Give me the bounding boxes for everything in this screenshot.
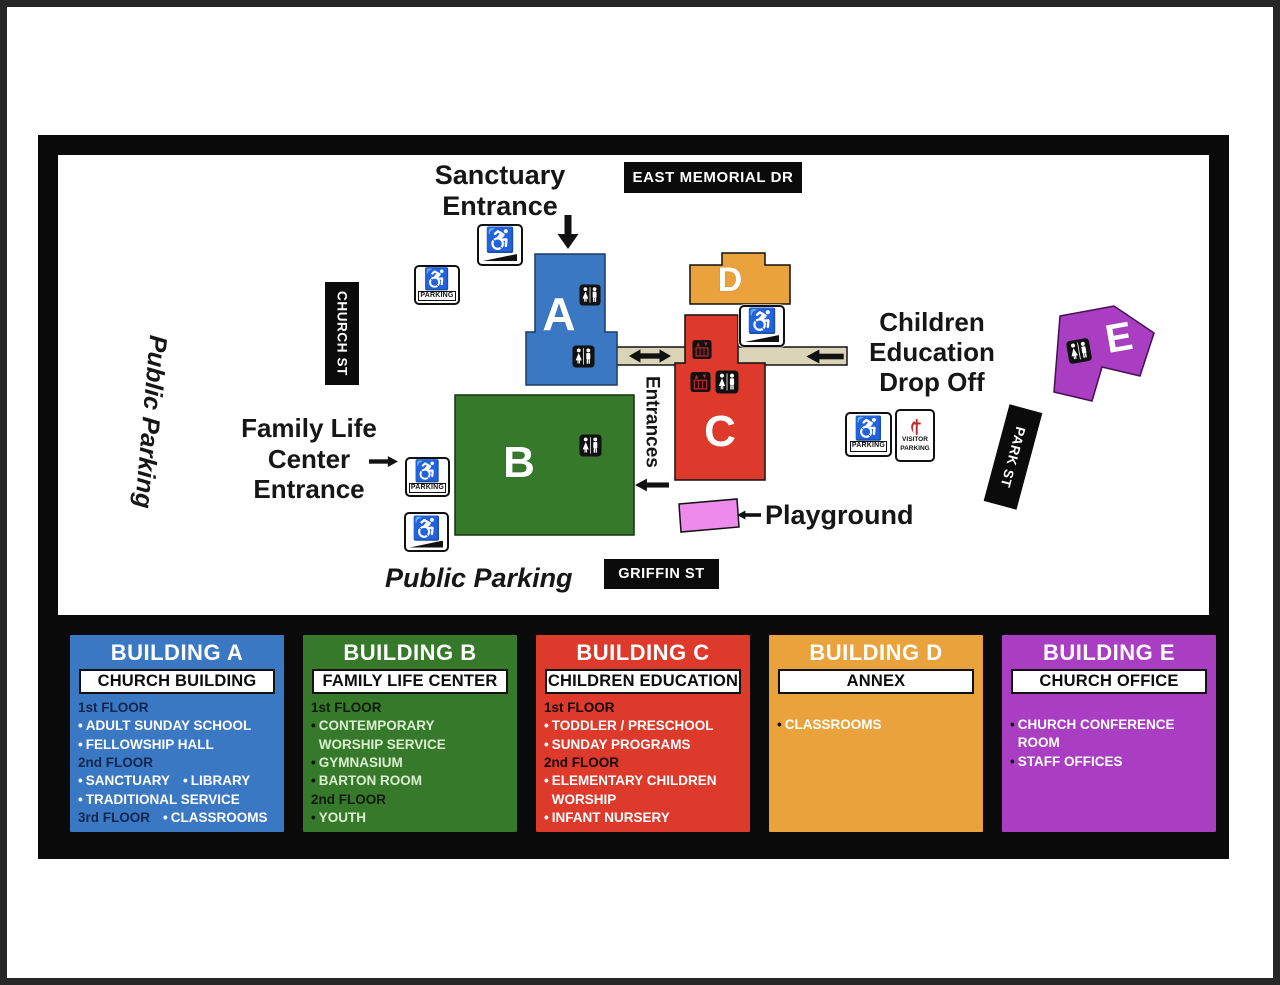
- flc-line1: Family Life: [214, 413, 404, 444]
- wheelchair-glyph: ♿: [412, 517, 441, 540]
- legend-line: •INFANT NURSERY: [544, 809, 743, 827]
- arrow-left-playground-icon: [737, 508, 761, 522]
- legend-panel-e: BUILDING ECHURCH OFFICE•CHURCH CONFERENC…: [1002, 635, 1216, 832]
- legend-panel-subtitle: CHURCH BUILDING: [79, 669, 275, 694]
- bullet-dot: •: [544, 809, 549, 827]
- legend-floor-label: 3rd FLOOR: [78, 809, 150, 827]
- legend-line: •GYMNASIUM: [311, 754, 510, 772]
- arrow-down-icon: [555, 215, 581, 249]
- arrow-right-flc-icon: [369, 454, 398, 469]
- playground-shape: [679, 499, 739, 532]
- visitor-parking-line1: VISITOR: [902, 436, 928, 444]
- legend-bullet-item: •CHURCH CONFERENCE ROOM: [1010, 716, 1175, 753]
- arrow-left-b-entrance-icon: [635, 477, 669, 493]
- legend-line: •ELEMENTARY CHILDREN WORSHIP: [544, 772, 743, 809]
- legend-panel-b: BUILDING BFAMILY LIFE CENTER1st FLOOR•CO…: [303, 635, 517, 832]
- bullet-dot: •: [544, 736, 549, 754]
- building-c-letter: C: [690, 410, 750, 454]
- legend-line: •CONTEMPORARY WORSHIP SERVICE: [311, 717, 510, 754]
- bullet-dot: •: [311, 717, 316, 754]
- ramp-wedge: [410, 541, 444, 548]
- legend-panel-items: 1st FLOOR•ADULT SUNDAY SCHOOL•FELLOWSHIP…: [70, 696, 284, 828]
- bullet-text: ADULT SUNDAY SCHOOL: [86, 717, 252, 735]
- ramp-wedge: [483, 254, 517, 261]
- bullet-dot: •: [777, 716, 782, 734]
- legend-line: 1st FLOOR: [78, 699, 277, 717]
- bullet-dot: •: [78, 791, 83, 809]
- building-d-letter: D: [700, 263, 760, 297]
- bullet-text: CHURCH CONFERENCE ROOM: [1018, 716, 1175, 753]
- legend-bullet-item: •FELLOWSHIP HALL: [78, 736, 214, 754]
- legend-line: •SUNDAY PROGRAMS: [544, 736, 743, 754]
- elevator-icon: [690, 371, 711, 393]
- legend-bullet-item: •BARTON ROOM: [311, 772, 422, 790]
- bullet-text: INFANT NURSERY: [552, 809, 670, 827]
- bullet-dot: •: [311, 772, 316, 790]
- parking-sign-label: PARKING: [850, 441, 887, 451]
- legend-row: BUILDING ACHURCH BUILDING1st FLOOR•ADULT…: [70, 635, 1217, 832]
- bullet-text: SUNDAY PROGRAMS: [552, 736, 691, 754]
- page: { "colors": { "building_a_blue": "#3B78C…: [0, 0, 1280, 985]
- elevator-icon: [692, 339, 712, 360]
- legend-floor-label: 1st FLOOR: [311, 699, 382, 717]
- legend-bullet-item: •STAFF OFFICES: [1010, 753, 1122, 771]
- legend-panel-items: •CLASSROOMS: [769, 696, 983, 734]
- legend-bullet-item: •CLASSROOMS: [163, 809, 268, 827]
- children-education-drop-off-label: Children Education Drop Off: [842, 308, 1022, 398]
- campus-map: EAST MEMORIAL DR CHURCH ST GRIFFIN ST PA…: [58, 155, 1209, 615]
- building-b-letter: B: [489, 441, 549, 485]
- legend-line: •TODDLER / PRESCHOOL: [544, 717, 743, 735]
- legend-panel-subtitle: CHILDREN EDUCATION: [545, 669, 741, 694]
- legend-bullet-item: •CONTEMPORARY WORSHIP SERVICE: [311, 717, 446, 754]
- restroom-icon: [1065, 337, 1093, 365]
- wheelchair-glyph: ♿: [414, 461, 440, 482]
- restroom-icon: [572, 345, 595, 368]
- bullet-dot: •: [78, 772, 83, 790]
- bullet-dot: •: [1010, 716, 1015, 753]
- wheelchair-ramp-icon: ♿: [739, 305, 785, 347]
- legend-line: •BARTON ROOM: [311, 772, 510, 790]
- bullet-text: TRADITIONAL SERVICE: [86, 791, 240, 809]
- bullet-text: SANCTUARY: [86, 772, 170, 790]
- legend-panel-title: BUILDING B: [303, 635, 517, 666]
- restroom-icon: [579, 284, 601, 306]
- children-line1: Children: [842, 308, 1022, 338]
- legend-line: 2nd FLOOR: [544, 754, 743, 772]
- legend-line: •CLASSROOMS: [777, 716, 976, 734]
- legend-bullet-item: •TRADITIONAL SERVICE: [78, 791, 240, 809]
- visitor-parking-line2: PARKING: [900, 445, 930, 453]
- wheelchair-parking-icon: ♿ PARKING: [845, 412, 892, 457]
- arrow-left-dropoff-icon: [806, 349, 844, 364]
- bullet-text: CLASSROOMS: [785, 716, 882, 734]
- legend-panel-title: BUILDING C: [536, 635, 750, 666]
- bullet-dot: •: [78, 717, 83, 735]
- restroom-icon: [579, 434, 602, 457]
- bullet-dot: •: [78, 736, 83, 754]
- bullet-text: FELLOWSHIP HALL: [86, 736, 214, 754]
- legend-line: •ADULT SUNDAY SCHOOL: [78, 717, 277, 735]
- legend-line: 2nd FLOOR: [311, 791, 510, 809]
- bullet-dot: •: [311, 809, 316, 827]
- legend-bullet-item: •ELEMENTARY CHILDREN WORSHIP: [544, 772, 717, 809]
- legend-panel-subtitle: ANNEX: [778, 669, 974, 694]
- legend-panel-title: BUILDING E: [1002, 635, 1216, 666]
- street-griffin-st: GRIFFIN ST: [604, 559, 719, 589]
- bullet-text: LIBRARY: [191, 772, 251, 790]
- bullet-text: ELEMENTARY CHILDREN WORSHIP: [552, 772, 717, 809]
- legend-panel-a: BUILDING ACHURCH BUILDING1st FLOOR•ADULT…: [70, 635, 284, 832]
- sanctuary-entrance-line1: Sanctuary: [410, 160, 590, 191]
- street-church-st: CHURCH ST: [325, 282, 359, 385]
- wheelchair-glyph: ♿: [485, 229, 515, 253]
- legend-panel-d: BUILDING DANNEX•CLASSROOMS: [769, 635, 983, 832]
- wheelchair-glyph: ♿: [424, 269, 450, 290]
- legend-panel-items: 1st FLOOR•CONTEMPORARY WORSHIP SERVICE•G…: [303, 696, 517, 828]
- umc-cross-flame-icon: [907, 418, 923, 436]
- bullet-text: CONTEMPORARY WORSHIP SERVICE: [319, 717, 446, 754]
- legend-line: •TRADITIONAL SERVICE: [78, 791, 277, 809]
- map-shapes: [58, 155, 1209, 615]
- bullet-text: CLASSROOMS: [171, 809, 268, 827]
- legend-panel-subtitle: FAMILY LIFE CENTER: [312, 669, 508, 694]
- wheelchair-glyph: ♿: [747, 310, 777, 334]
- map-frame: EAST MEMORIAL DR CHURCH ST GRIFFIN ST PA…: [38, 135, 1229, 859]
- legend-panel-subtitle: CHURCH OFFICE: [1011, 669, 1207, 694]
- legend-bullet-item: •GYMNASIUM: [311, 754, 403, 772]
- legend-line: 1st FLOOR: [544, 699, 743, 717]
- wheelchair-parking-icon: ♿ PARKING: [414, 265, 460, 305]
- wheelchair-glyph: ♿: [854, 417, 883, 440]
- parking-sign-label: PARKING: [418, 291, 455, 301]
- legend-floor-label: 2nd FLOOR: [311, 791, 386, 809]
- visitor-parking-icon: VISITOR PARKING: [895, 409, 935, 462]
- legend-bullet-item: •ADULT SUNDAY SCHOOL: [78, 717, 251, 735]
- legend-line: 3rd FLOOR•CLASSROOMS: [78, 809, 277, 827]
- legend-panel-items: 1st FLOOR•TODDLER / PRESCHOOL•SUNDAY PRO…: [536, 696, 750, 828]
- legend-bullet-item: •SUNDAY PROGRAMS: [544, 736, 691, 754]
- arrow-double-horizontal-icon: [629, 348, 671, 364]
- legend-line: •CHURCH CONFERENCE ROOM: [1010, 716, 1209, 753]
- bullet-dot: •: [163, 809, 168, 827]
- legend-panel-title: BUILDING A: [70, 635, 284, 666]
- sanctuary-entrance-label: Sanctuary Entrance: [410, 160, 590, 222]
- restroom-icon: [715, 370, 739, 394]
- bullet-dot: •: [1010, 753, 1015, 771]
- wheelchair-ramp-icon: ♿: [477, 224, 523, 266]
- legend-line: •SANCTUARY•LIBRARY: [78, 772, 277, 790]
- legend-bullet-item: •LIBRARY: [183, 772, 250, 790]
- legend-bullet-item: •YOUTH: [311, 809, 366, 827]
- ramp-wedge: [745, 335, 779, 342]
- bullet-text: GYMNASIUM: [319, 754, 403, 772]
- legend-line: 1st FLOOR: [311, 699, 510, 717]
- children-line3: Drop Off: [842, 368, 1022, 398]
- bullet-text: YOUTH: [319, 809, 366, 827]
- wheelchair-ramp-icon: ♿: [404, 512, 449, 552]
- children-line2: Education: [842, 338, 1022, 368]
- flc-line3: Entrance: [214, 474, 404, 505]
- bullet-text: TODDLER / PRESCHOOL: [552, 717, 714, 735]
- bullet-dot: •: [544, 717, 549, 735]
- legend-bullet-item: •TODDLER / PRESCHOOL: [544, 717, 714, 735]
- legend-line: •FELLOWSHIP HALL: [78, 736, 277, 754]
- bullet-dot: •: [544, 772, 549, 809]
- legend-line: •YOUTH: [311, 809, 510, 827]
- legend-floor-label: 1st FLOOR: [78, 699, 149, 717]
- entrances-label: Entrances: [641, 368, 663, 476]
- playground-label: Playground: [765, 500, 914, 531]
- legend-floor-label: 1st FLOOR: [544, 699, 615, 717]
- legend-bullet-item: •SANCTUARY: [78, 772, 170, 790]
- legend-bullet-item: •INFANT NURSERY: [544, 809, 670, 827]
- legend-panel-items: •CHURCH CONFERENCE ROOM•STAFF OFFICES: [1002, 696, 1216, 771]
- legend-bullet-item: •CLASSROOMS: [777, 716, 882, 734]
- public-parking-bottom-label: Public Parking: [385, 563, 573, 594]
- bullet-text: STAFF OFFICES: [1018, 753, 1123, 771]
- bullet-dot: •: [311, 754, 316, 772]
- legend-line: 2nd FLOOR: [78, 754, 277, 772]
- legend-floor-label: 2nd FLOOR: [544, 754, 619, 772]
- legend-line: •STAFF OFFICES: [1010, 753, 1209, 771]
- parking-sign-label: PARKING: [409, 483, 446, 493]
- bullet-text: BARTON ROOM: [319, 772, 422, 790]
- wheelchair-parking-icon: ♿ PARKING: [405, 457, 450, 497]
- bullet-dot: •: [183, 772, 188, 790]
- legend-panel-c: BUILDING CCHILDREN EDUCATION1st FLOOR•TO…: [536, 635, 750, 832]
- legend-panel-title: BUILDING D: [769, 635, 983, 666]
- legend-floor-label: 2nd FLOOR: [78, 754, 153, 772]
- street-east-memorial-dr: EAST MEMORIAL DR: [624, 162, 802, 193]
